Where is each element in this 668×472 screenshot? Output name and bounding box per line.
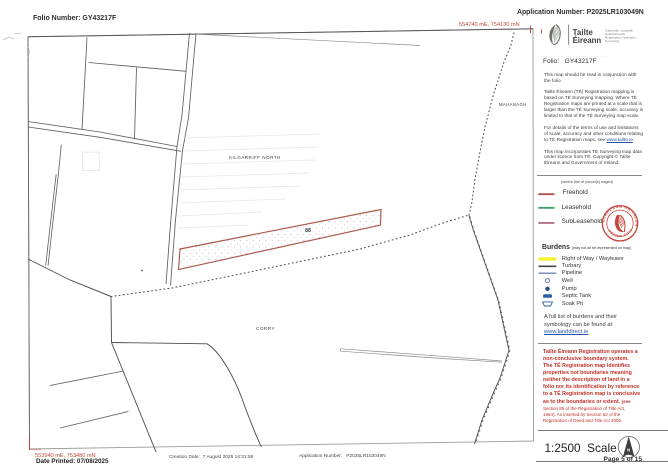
svg-text:N: N [627,448,630,453]
svg-text:Surveying: Surveying [605,39,619,43]
svg-text:Éireann: Éireann [573,36,602,45]
